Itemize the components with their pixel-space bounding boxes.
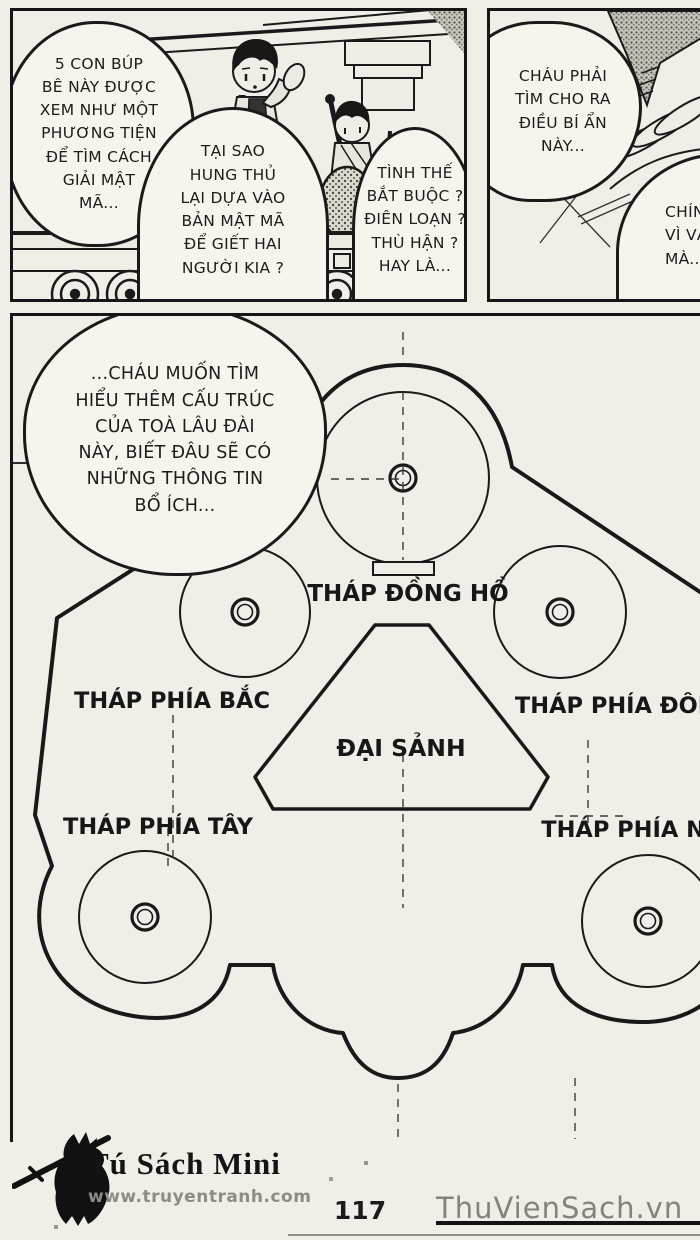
scan-noise-specks bbox=[0, 0, 2, 2]
panel-floorplan: THÁP ĐỒNG HỒ THÁP PHÍA BẮC THÁP PHÍA ĐÔN… bbox=[10, 313, 700, 1142]
west-tower-shape bbox=[79, 851, 211, 983]
east-tower-shape bbox=[494, 546, 626, 678]
speech-text: TÌNH THẾ BẮT BUỘC ? ĐIÊN LOẠN ? THÙ HẬN … bbox=[364, 162, 466, 278]
speech-text: CHÁU PHẢI TÌM CHO RA ĐIỀU BÍ ẨN NÀY... bbox=[515, 65, 611, 158]
publisher-logo-text: Tú Sách Mini bbox=[88, 1146, 281, 1182]
speech-text: CHÍN VÌ VẬ MÀ... bbox=[665, 201, 700, 271]
bottom-scan-line bbox=[288, 1234, 700, 1236]
label-east-tower: THÁP PHÍA ĐÔNG bbox=[515, 691, 700, 719]
speech-text: ...CHÁU MUỐN TÌM HIỂU THÊM CẤU TRÚC CỦA … bbox=[75, 361, 274, 519]
floorplan-labels: THÁP ĐỒNG HỒ THÁP PHÍA BẮC THÁP PHÍA ĐÔN… bbox=[63, 576, 700, 843]
label-clock-tower: THÁP ĐỒNG HỒ bbox=[307, 576, 508, 607]
speech-text: TẠI SAO HUNG THỦ LẠI DỰA VÀO BẢN MẬT MÃ … bbox=[181, 140, 286, 280]
great-hall-shape bbox=[255, 625, 548, 809]
label-north-tower: THÁP PHÍA BẮC bbox=[74, 683, 270, 714]
page-number: 117 bbox=[325, 1196, 395, 1225]
label-great-hall: ĐẠI SẢNH bbox=[336, 732, 465, 762]
label-west-tower: THÁP PHÍA TÂY bbox=[63, 812, 254, 840]
clock-tower-shape bbox=[317, 392, 489, 564]
publisher-website: www.truyentranh.com bbox=[88, 1187, 311, 1207]
site-watermark: ThuVienSach.vn bbox=[436, 1191, 683, 1225]
shaded-corner bbox=[428, 11, 464, 53]
panel-top-right: CHÁU PHẢI TÌM CHO RA ĐIỀU BÍ ẨN NÀY... C… bbox=[487, 8, 700, 302]
label-south-tower: THÁP PHÍA NAM bbox=[541, 815, 700, 843]
column-capital bbox=[345, 41, 430, 110]
panel-top-left: 5 CON BÚP BÊ NÀY ĐƯỢC XEM NHƯ MỘT PHƯƠNG… bbox=[10, 8, 467, 302]
watermark-underline bbox=[436, 1221, 700, 1225]
